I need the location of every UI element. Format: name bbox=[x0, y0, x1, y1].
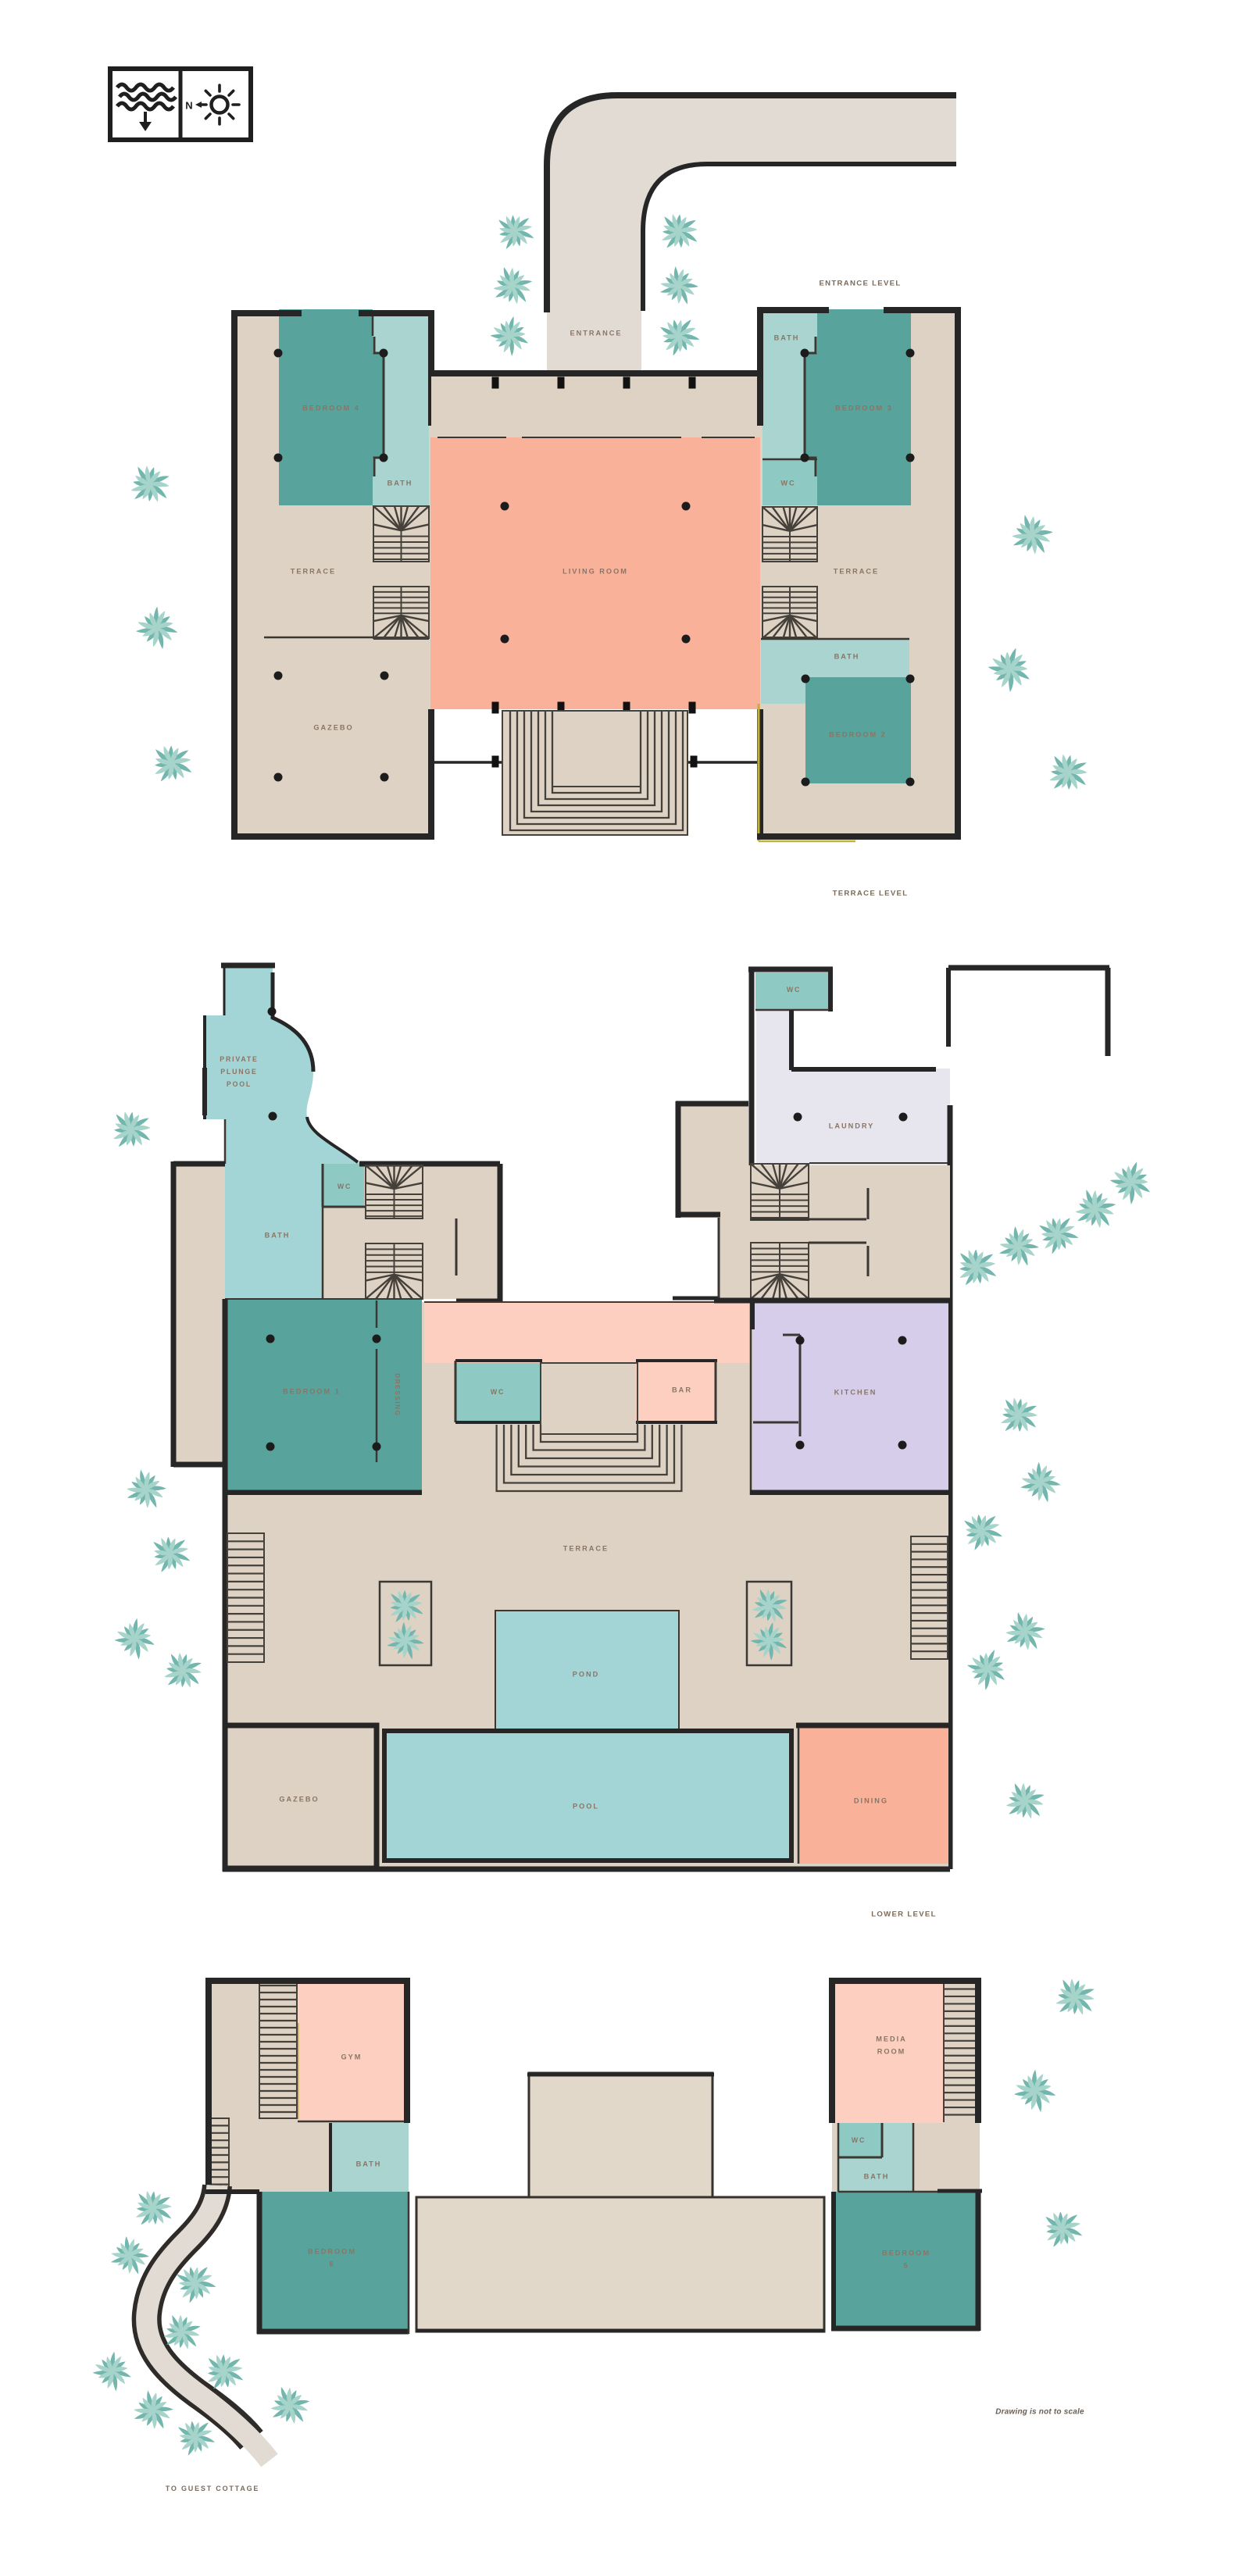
svg-text:LIVING ROOM: LIVING ROOM bbox=[562, 567, 628, 575]
svg-text:N: N bbox=[185, 100, 192, 112]
svg-text:TERRACE: TERRACE bbox=[291, 567, 336, 575]
svg-text:POOL: POOL bbox=[227, 1080, 252, 1088]
svg-text:BATH: BATH bbox=[356, 2160, 382, 2167]
svg-text:BATH: BATH bbox=[864, 2172, 890, 2180]
svg-text:WC: WC bbox=[780, 479, 795, 487]
svg-text:KITCHEN: KITCHEN bbox=[834, 1388, 877, 1396]
svg-text:BATH: BATH bbox=[774, 334, 800, 341]
svg-text:LAUNDRY: LAUNDRY bbox=[829, 1122, 875, 1129]
svg-text:PRIVATE: PRIVATE bbox=[220, 1055, 258, 1063]
svg-text:WC: WC bbox=[491, 1388, 505, 1396]
svg-text:POOL: POOL bbox=[573, 1802, 599, 1810]
svg-text:TERRACE: TERRACE bbox=[563, 1544, 609, 1552]
svg-text:POND: POND bbox=[573, 1670, 600, 1678]
svg-text:BEDROOM 1: BEDROOM 1 bbox=[283, 1387, 341, 1395]
svg-text:BEDROOM 4: BEDROOM 4 bbox=[302, 404, 360, 412]
svg-text:Drawing is not to scale: Drawing is not to scale bbox=[995, 2408, 1084, 2417]
svg-text:DRESSING: DRESSING bbox=[394, 1373, 401, 1417]
svg-text:ENTRANCE: ENTRANCE bbox=[570, 329, 622, 337]
svg-text:PLUNGE: PLUNGE bbox=[220, 1068, 257, 1076]
svg-text:LOWER LEVEL: LOWER LEVEL bbox=[871, 1910, 937, 1918]
svg-text:WC: WC bbox=[852, 2136, 866, 2144]
svg-text:ROOM: ROOM bbox=[877, 2047, 906, 2055]
svg-text:6: 6 bbox=[329, 2260, 334, 2267]
svg-text:BAR: BAR bbox=[672, 1386, 692, 1393]
svg-text:DINING: DINING bbox=[854, 1796, 888, 1804]
svg-text:GYM: GYM bbox=[341, 2053, 362, 2060]
svg-text:BATH: BATH bbox=[265, 1231, 291, 1239]
svg-text:BATH: BATH bbox=[387, 479, 413, 487]
svg-text:TERRACE LEVEL: TERRACE LEVEL bbox=[833, 889, 909, 897]
svg-text:GAZEBO: GAZEBO bbox=[279, 1795, 319, 1803]
svg-text:GAZEBO: GAZEBO bbox=[313, 723, 353, 731]
svg-text:WC: WC bbox=[787, 986, 801, 994]
svg-text:BEDROOM: BEDROOM bbox=[882, 2249, 930, 2257]
svg-text:MEDIA: MEDIA bbox=[876, 2035, 907, 2043]
svg-text:WC: WC bbox=[337, 1183, 352, 1190]
svg-text:ENTRANCE LEVEL: ENTRANCE LEVEL bbox=[819, 279, 901, 287]
svg-text:TERRACE: TERRACE bbox=[834, 567, 879, 575]
svg-text:5: 5 bbox=[903, 2261, 909, 2269]
svg-text:BATH: BATH bbox=[834, 652, 860, 660]
svg-text:BEDROOM: BEDROOM bbox=[308, 2247, 356, 2255]
svg-text:BEDROOM 3: BEDROOM 3 bbox=[835, 404, 893, 412]
svg-text:TO GUEST COTTAGE: TO GUEST COTTAGE bbox=[166, 2485, 259, 2492]
svg-text:BEDROOM 2: BEDROOM 2 bbox=[829, 730, 887, 738]
